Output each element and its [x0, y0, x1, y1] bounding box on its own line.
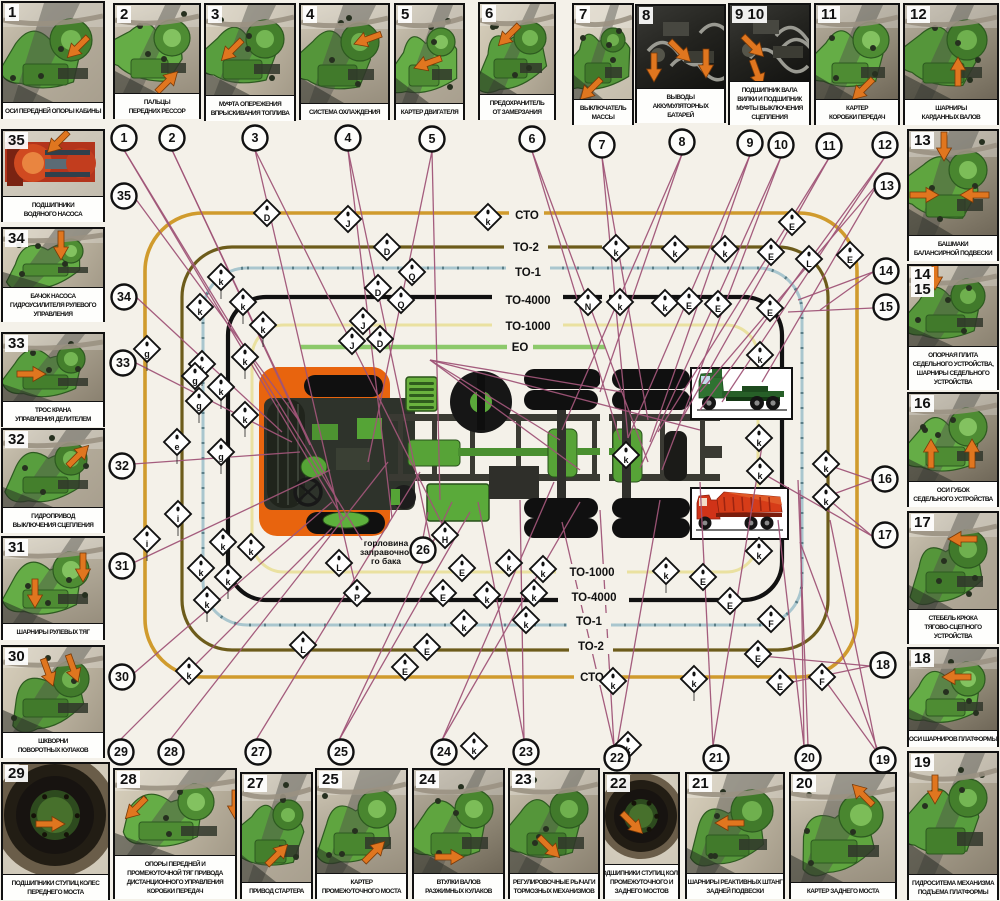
svg-text:D: D — [384, 247, 391, 257]
svg-text:32: 32 — [115, 459, 129, 473]
svg-text:E: E — [768, 252, 774, 262]
svg-text:23: 23 — [519, 745, 533, 759]
svg-text:31: 31 — [115, 559, 129, 573]
svg-text:k: k — [260, 325, 266, 335]
svg-text:D: D — [377, 339, 384, 349]
svg-text:k: k — [204, 600, 210, 610]
svg-text:k: k — [242, 357, 248, 367]
svg-text:k: k — [186, 671, 192, 681]
svg-text:ЕО: ЕО — [512, 342, 529, 354]
svg-text:k: k — [757, 355, 763, 365]
svg-text:F: F — [768, 619, 774, 629]
svg-text:H: H — [442, 535, 449, 545]
svg-text:ТО-2: ТО-2 — [578, 641, 604, 653]
svg-text:k: k — [248, 547, 254, 557]
svg-text:g: g — [218, 452, 224, 462]
svg-text:E: E — [727, 601, 733, 611]
svg-text:k: k — [757, 471, 763, 481]
svg-text:ТО-1: ТО-1 — [515, 267, 542, 279]
svg-text:E: E — [440, 593, 446, 603]
svg-text:14: 14 — [879, 264, 893, 278]
svg-text:P: P — [354, 593, 360, 603]
svg-text:J: J — [345, 219, 350, 229]
svg-text:17: 17 — [878, 528, 892, 542]
svg-text:k: k — [199, 364, 205, 374]
svg-text:J: J — [360, 321, 365, 331]
svg-text:i: i — [146, 539, 149, 549]
svg-text:k: k — [218, 277, 224, 287]
svg-text:k: k — [663, 571, 669, 581]
svg-text:E: E — [847, 255, 853, 265]
svg-text:k: k — [756, 438, 762, 448]
svg-text:2: 2 — [169, 131, 176, 145]
svg-text:заправочно-: заправочно- — [360, 547, 412, 557]
svg-text:11: 11 — [822, 139, 835, 153]
svg-text:24: 24 — [437, 745, 451, 759]
svg-text:J: J — [349, 341, 354, 351]
svg-text:1: 1 — [121, 131, 128, 145]
svg-text:E: E — [459, 568, 465, 578]
svg-text:15: 15 — [879, 300, 893, 314]
svg-text:3: 3 — [252, 131, 259, 145]
svg-text:L: L — [336, 563, 342, 573]
svg-text:g: g — [196, 401, 202, 411]
svg-text:k: k — [540, 569, 546, 579]
svg-text:i: i — [177, 514, 180, 524]
svg-text:E: E — [755, 654, 761, 664]
svg-text:k: k — [523, 620, 529, 630]
svg-text:33: 33 — [116, 356, 130, 370]
svg-text:L: L — [300, 645, 306, 655]
svg-text:СТО: СТО — [580, 672, 604, 684]
svg-text:ТО-1000: ТО-1000 — [505, 321, 550, 333]
svg-text:35: 35 — [117, 189, 131, 203]
svg-text:7: 7 — [599, 138, 606, 152]
svg-text:E: E — [789, 222, 795, 232]
svg-text:k: k — [623, 455, 629, 465]
svg-text:L: L — [806, 259, 812, 269]
svg-text:k: k — [506, 563, 512, 573]
svg-text:k: k — [242, 415, 248, 425]
svg-text:g: g — [144, 349, 150, 359]
svg-text:13: 13 — [880, 179, 894, 193]
svg-text:29: 29 — [114, 745, 128, 759]
svg-text:k: k — [198, 568, 204, 578]
svg-text:D: D — [264, 213, 271, 223]
svg-text:ТО-1: ТО-1 — [576, 616, 603, 628]
svg-text:k: k — [531, 593, 537, 603]
svg-text:Q: Q — [397, 300, 404, 310]
svg-text:e: e — [174, 442, 179, 452]
svg-text:30: 30 — [115, 670, 129, 684]
svg-text:k: k — [823, 497, 829, 507]
svg-text:k: k — [672, 249, 678, 259]
svg-text:9: 9 — [747, 136, 754, 150]
svg-text:6: 6 — [529, 132, 536, 146]
svg-text:E: E — [700, 577, 706, 587]
svg-text:k: k — [756, 551, 762, 561]
svg-text:E: E — [777, 682, 783, 692]
svg-text:20: 20 — [801, 751, 815, 765]
svg-text:Q: Q — [408, 272, 415, 282]
svg-text:D: D — [375, 288, 382, 298]
svg-text:E: E — [767, 308, 773, 318]
svg-text:F: F — [819, 677, 825, 687]
svg-text:ТО-2: ТО-2 — [513, 242, 539, 254]
svg-text:k: k — [218, 387, 224, 397]
svg-text:28: 28 — [164, 745, 178, 759]
svg-text:горловина: горловина — [364, 538, 409, 548]
svg-text:34: 34 — [117, 290, 131, 304]
svg-text:10: 10 — [774, 138, 788, 152]
svg-text:21: 21 — [709, 751, 723, 765]
svg-text:E: E — [402, 667, 408, 677]
svg-text:E: E — [686, 301, 692, 311]
svg-text:5: 5 — [429, 132, 436, 146]
svg-text:25: 25 — [334, 745, 348, 759]
svg-text:E: E — [424, 647, 430, 657]
svg-text:k: k — [613, 248, 619, 258]
svg-text:k: k — [240, 302, 246, 312]
svg-text:k: k — [722, 249, 728, 259]
svg-text:16: 16 — [878, 472, 892, 486]
svg-text:E: E — [715, 304, 721, 314]
svg-text:ТО-4000: ТО-4000 — [571, 592, 616, 604]
svg-text:g: g — [192, 376, 198, 386]
svg-text:k: k — [225, 577, 231, 587]
svg-text:го бака: го бака — [371, 556, 401, 566]
svg-text:26: 26 — [416, 543, 430, 557]
svg-text:k: k — [617, 302, 623, 312]
svg-text:k: k — [625, 745, 631, 755]
svg-text:k: k — [220, 542, 226, 552]
svg-text:4: 4 — [345, 131, 352, 145]
svg-text:8: 8 — [679, 135, 686, 149]
svg-text:22: 22 — [610, 751, 624, 765]
svg-text:18: 18 — [876, 658, 890, 672]
svg-text:k: k — [471, 746, 477, 756]
svg-text:27: 27 — [251, 745, 265, 759]
svg-text:N: N — [585, 302, 592, 312]
svg-text:k: k — [823, 464, 829, 474]
svg-text:19: 19 — [876, 753, 890, 767]
svg-text:k: k — [691, 679, 697, 689]
svg-text:k: k — [484, 595, 490, 605]
svg-text:ТО-4000: ТО-4000 — [505, 295, 550, 307]
svg-text:k: k — [461, 623, 467, 633]
svg-text:k: k — [610, 681, 616, 691]
svg-text:12: 12 — [878, 138, 892, 152]
svg-text:k: k — [197, 307, 203, 317]
svg-text:k: k — [485, 217, 491, 227]
svg-text:k: k — [662, 303, 668, 313]
svg-text:ТО-1000: ТО-1000 — [569, 567, 614, 579]
svg-text:СТО: СТО — [515, 210, 539, 222]
